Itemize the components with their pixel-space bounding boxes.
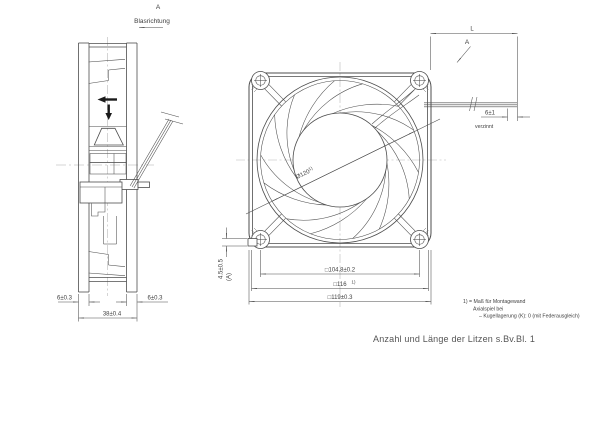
lead-wires <box>424 97 517 111</box>
dim-outer-square: □119±0.3 <box>328 295 353 301</box>
blade-section-top <box>89 59 126 83</box>
tinned-label: verzinnt <box>475 124 494 130</box>
dim-wall-square: □116 <box>333 282 347 288</box>
lead-wires-front <box>372 90 419 128</box>
dim-tinned-length: 6±1 <box>485 111 496 117</box>
blade-section-bottom <box>89 252 126 276</box>
drawing-canvas: A Blasrichtung <box>0 0 600 429</box>
notes: 1) = Maß für Montagewand Axialspiel bei … <box>463 299 580 320</box>
cable-gland <box>120 180 150 190</box>
front-view: Ø1201) 4.5±0.5 (A) □104.8±0.2 □1 <box>219 62 447 307</box>
dim-corner-pad-ref: (A) <box>227 273 233 281</box>
dim-wall-square-sup: 1) <box>352 280 356 285</box>
dim-length: L <box>470 27 474 33</box>
mounting-hole <box>411 231 429 249</box>
mounting-hole <box>252 72 270 90</box>
mounting-hole <box>411 72 429 90</box>
motor-hub-section <box>94 128 123 145</box>
note-axial-play: Axialspiel bei <box>473 307 503 313</box>
lead-detail: L A 6±1 verzinnt <box>424 27 530 131</box>
side-view-dimensions: 6±0.3 6±0.3 38±0.4 <box>57 294 168 322</box>
side-view: A Blasrichtung <box>56 4 183 322</box>
caption: Anzahl und Länge der Litzen s.Bv.Bl. 1 <box>373 334 535 344</box>
hub <box>293 113 387 207</box>
dim-corner-pad: 4.5±0.5 <box>219 258 225 279</box>
dim-hole-pitch: □104.8±0.2 <box>325 268 356 274</box>
tinned-end-dimension: 6±1 verzinnt <box>475 109 530 131</box>
lead-wire-side <box>130 112 183 188</box>
view-a-label: A <box>156 4 161 11</box>
view-direction-arrow-icon <box>457 47 471 63</box>
note-mounting-wall: 1) = Maß für Montagewand <box>463 299 526 305</box>
fan-technical-drawing: A Blasrichtung <box>0 0 600 429</box>
dim-depth: 38±0.4 <box>103 312 122 318</box>
dim-flange-front: 6±0.3 <box>57 296 73 302</box>
view-arrow-label: A <box>465 39 470 46</box>
lower-housing-block <box>80 182 122 244</box>
airflow-label: Blasrichtung <box>134 18 170 25</box>
note-ball-bearing: – Kugellagerung (K): 0 (mit Federausglei… <box>479 314 580 320</box>
dim-flange-rear: 6±0.3 <box>148 296 164 302</box>
